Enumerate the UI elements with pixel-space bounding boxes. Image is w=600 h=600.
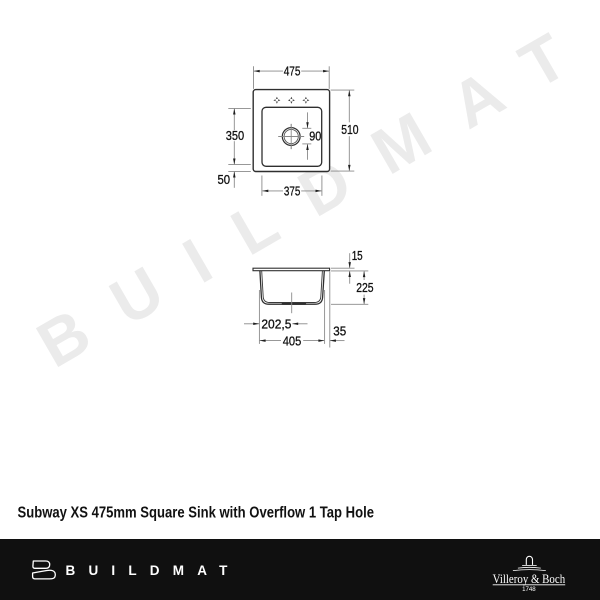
svg-text:375: 375: [284, 184, 301, 199]
svg-text:Villeroy & Boch: Villeroy & Boch: [493, 572, 566, 586]
svg-text:202,5: 202,5: [261, 317, 291, 332]
svg-text:35: 35: [333, 323, 346, 338]
svg-text:350: 350: [226, 128, 244, 143]
svg-text:475: 475: [284, 63, 301, 78]
svg-text:15: 15: [352, 248, 363, 263]
svg-text:510: 510: [341, 122, 358, 137]
svg-text:50: 50: [218, 172, 231, 187]
svg-text:BUILDMAT: BUILDMAT: [66, 563, 241, 578]
svg-text:90: 90: [309, 129, 321, 144]
svg-text:1748: 1748: [522, 586, 536, 593]
svg-text:225: 225: [356, 280, 373, 295]
svg-text:405: 405: [283, 333, 302, 348]
svg-text:Subway XS 475mm Square Sink wi: Subway XS 475mm Square Sink with Overflo…: [18, 505, 375, 522]
